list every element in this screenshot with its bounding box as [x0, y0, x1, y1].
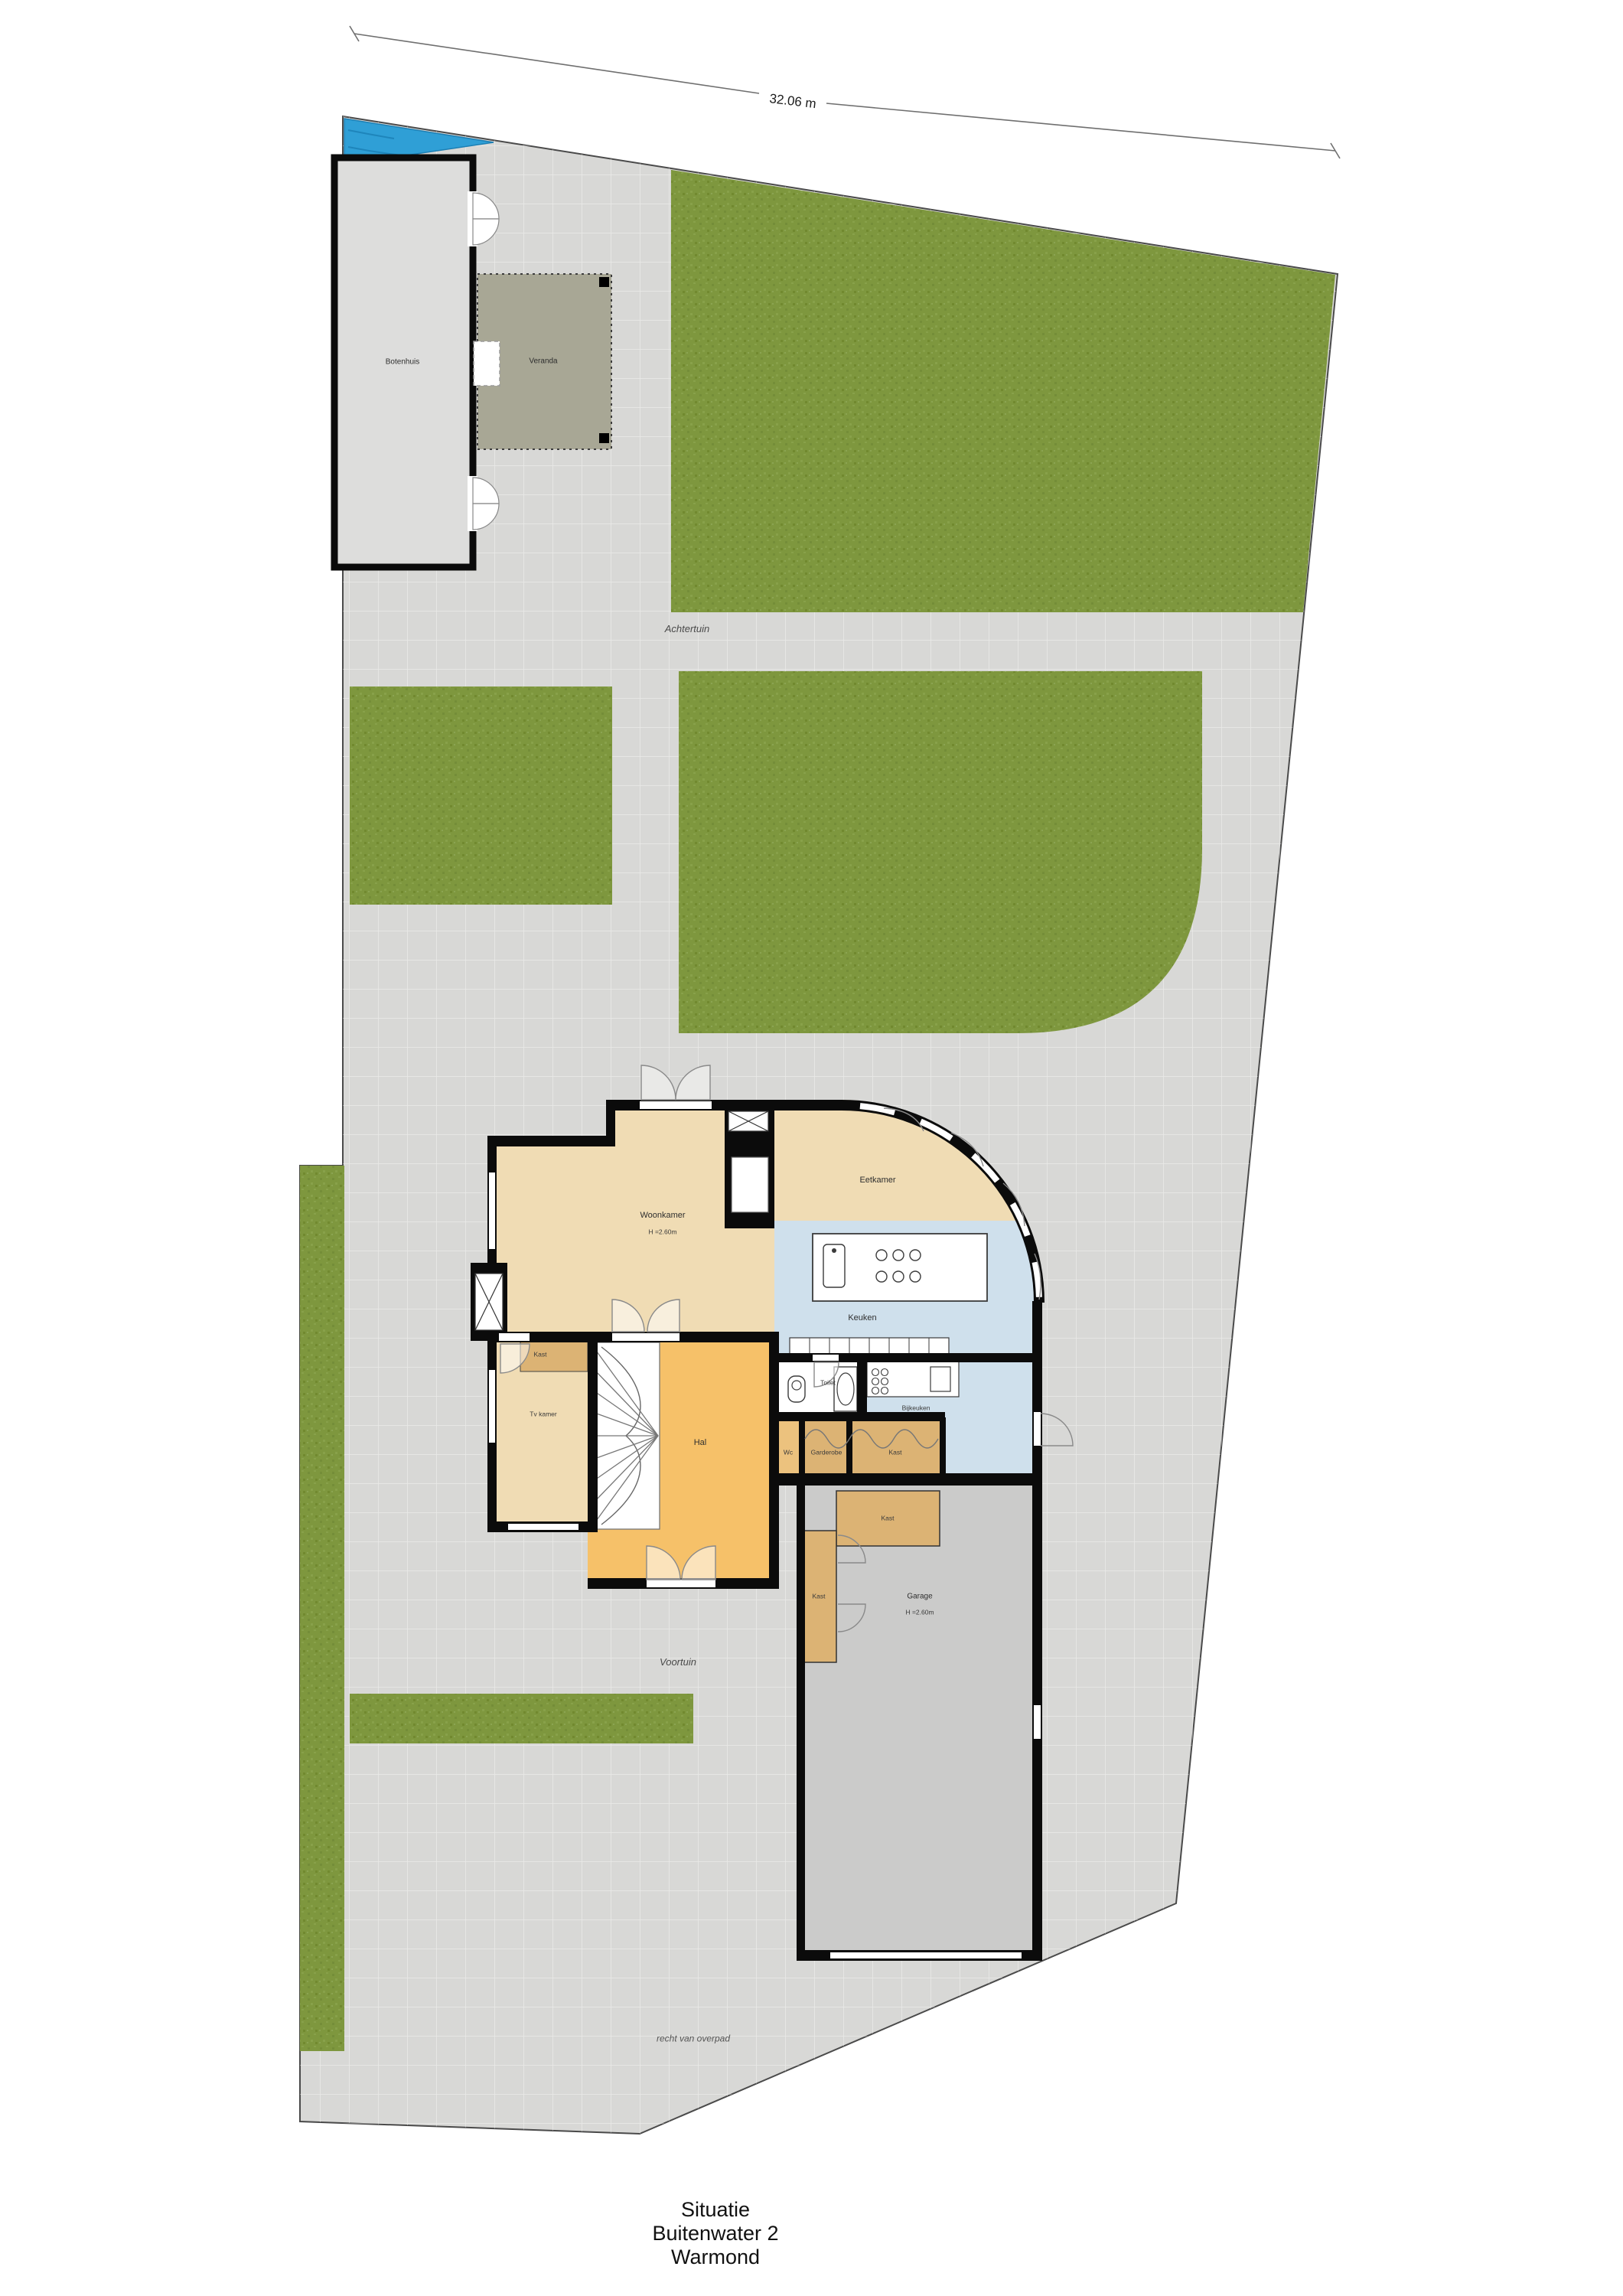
title-address: Buitenwater 2 [652, 2222, 778, 2245]
room-kast-strip [520, 1338, 588, 1371]
label-eetkamer: Eetkamer [859, 1176, 895, 1185]
spiral-staircase [593, 1342, 660, 1529]
label-bijkeuken: Bijkeuken [902, 1404, 930, 1411]
grass-back-right [671, 170, 1335, 612]
label-wc: Wc [784, 1449, 793, 1456]
veranda-doorway [474, 341, 500, 386]
grass-front-bar [350, 1694, 693, 1743]
label-toilet: Toilet [820, 1379, 836, 1386]
room-kast1 [851, 1421, 940, 1473]
label-overpad: recht van overpad [657, 2033, 730, 2043]
label-garage: Garage [907, 1593, 932, 1601]
label-hal: Hal [694, 1438, 707, 1447]
grass-left-strip [350, 687, 612, 905]
room-garderobe [802, 1421, 851, 1473]
utility-sink-icon [930, 1367, 950, 1391]
label-woonkamer: Woonkamer [640, 1211, 685, 1220]
label-tvkamer: Tv kamer [530, 1411, 556, 1417]
label-achtertuin: Achtertuin [665, 624, 710, 634]
label-veranda: Veranda [529, 357, 557, 366]
label-keuken: Keuken [848, 1313, 876, 1322]
label-kast2: Kast [881, 1515, 894, 1521]
site-plan-drawing [0, 0, 1623, 2296]
label-voortuin: Voortuin [660, 1657, 696, 1668]
grass-middle-block [679, 671, 1202, 1033]
wc-icon [788, 1376, 805, 1402]
title-situatie: Situatie [652, 2198, 778, 2222]
label-botenhuis: Botenhuis [386, 358, 419, 367]
title-city: Warmond [652, 2245, 778, 2269]
title-block: Situatie Buitenwater 2 Warmond [652, 2198, 778, 2269]
label-garage-height: H =2.60m [905, 1609, 934, 1616]
label-kast1: Kast [888, 1449, 901, 1456]
dimension-line [350, 26, 1340, 158]
label-kast3: Kast [812, 1593, 825, 1600]
veranda-post [599, 277, 609, 287]
grass-west-strip [300, 1166, 344, 2051]
label-kast4: Kast [533, 1351, 546, 1358]
label-garderobe: Garderobe [811, 1449, 842, 1456]
situation-plan: 32.06 m Botenhuis Veranda Achtertuin Voo… [0, 0, 1623, 2296]
veranda-post [599, 433, 609, 443]
label-woonkamer-height: H =2.60m [648, 1228, 676, 1235]
